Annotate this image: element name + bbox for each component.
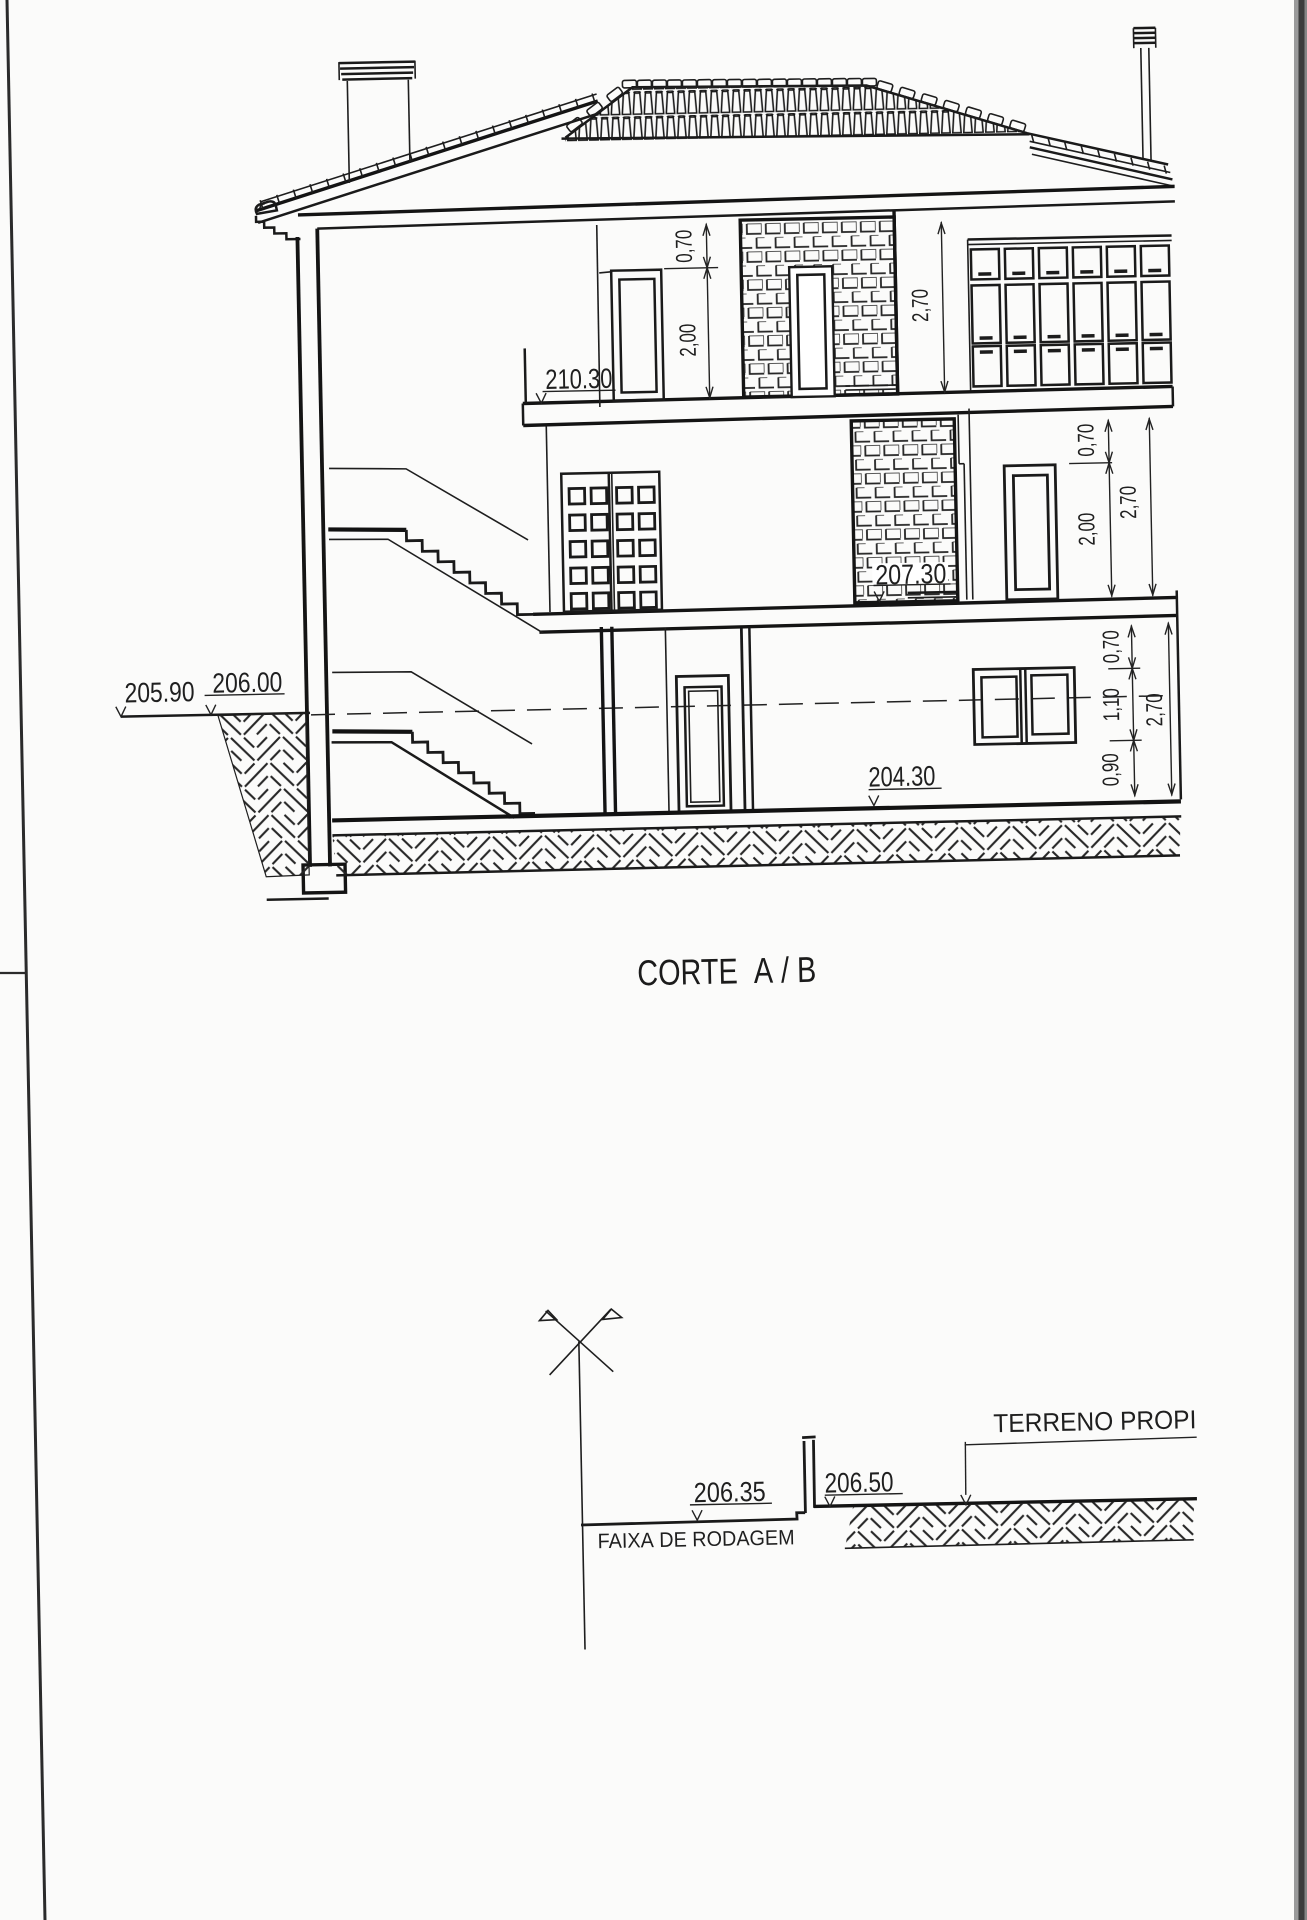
svg-text:0,70: 0,70	[1097, 630, 1124, 664]
svg-text:FAIXA DE RODAGEM: FAIXA DE RODAGEM	[597, 1526, 794, 1553]
svg-text:0,70: 0,70	[1072, 423, 1099, 457]
svg-text:2,70: 2,70	[907, 289, 934, 323]
svg-text:2,00: 2,00	[674, 323, 701, 357]
svg-text:205.90: 205.90	[124, 676, 195, 708]
svg-text:2,00: 2,00	[1073, 512, 1100, 546]
svg-text:CORTE A / B: CORTE A / B	[637, 949, 817, 994]
svg-text:1,10: 1,10	[1098, 688, 1125, 722]
svg-text:204.30: 204.30	[868, 760, 936, 792]
svg-text:2,70: 2,70	[1141, 693, 1168, 727]
svg-text:0,70: 0,70	[670, 229, 697, 263]
svg-text:0,90: 0,90	[1097, 753, 1124, 787]
svg-text:TERRENO PROPI: TERRENO PROPI	[993, 1404, 1197, 1438]
svg-text:2,70: 2,70	[1115, 486, 1142, 520]
